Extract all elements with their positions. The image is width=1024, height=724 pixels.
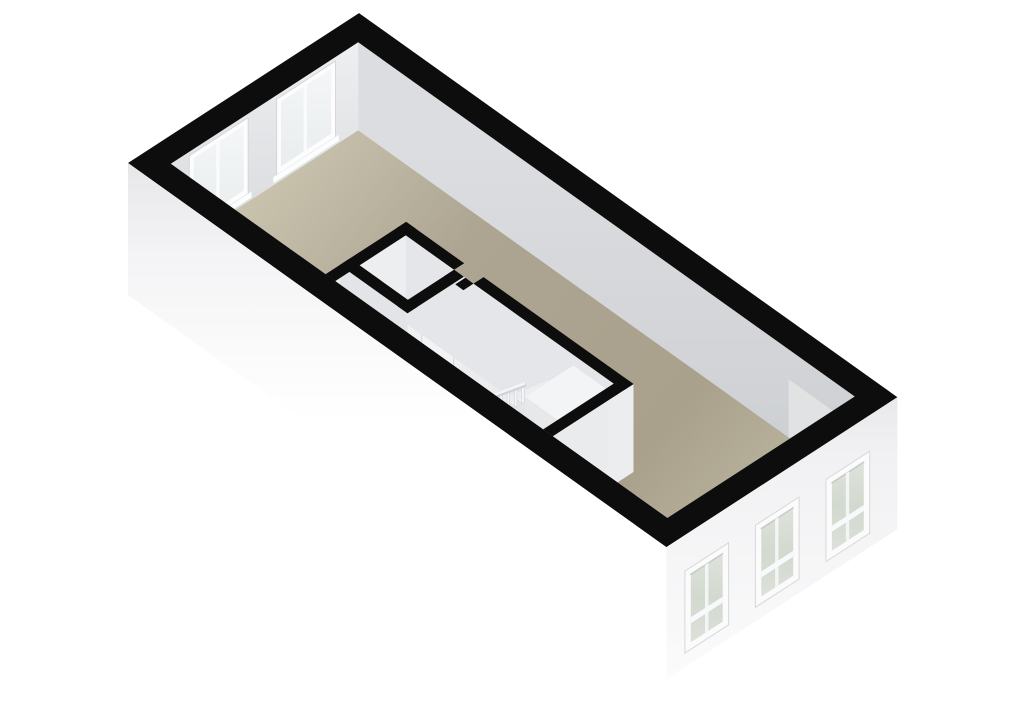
window-se-3-divider: [846, 471, 849, 541]
floorplan-3d-canvas: [0, 0, 1024, 724]
window-se-1-divider: [705, 563, 708, 633]
window-se-2-divider: [775, 517, 778, 587]
floorplan-3d-svg: [0, 0, 1024, 724]
window-nw-2-divider: [304, 85, 307, 152]
